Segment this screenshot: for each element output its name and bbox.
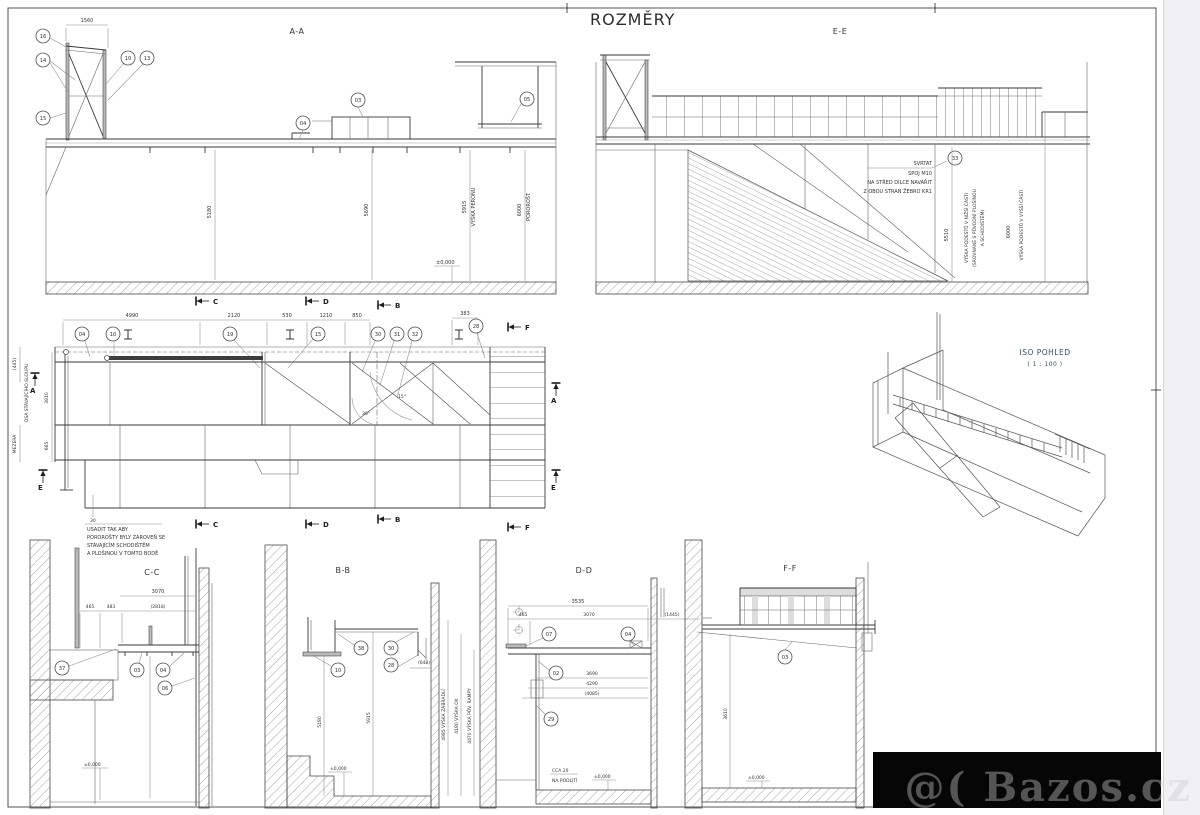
aa-elevation: ±0,000 [436,260,455,266]
balloon: 10 [121,51,135,65]
balloon: 14 [36,53,50,67]
plan-note-3: STÁVAJÍCÍM SCHODIŠTĚM [87,541,150,549]
balloon: 31 [390,327,404,341]
svg-text:14: 14 [40,58,47,64]
plan-dim: 850 [352,313,362,319]
svg-text:38: 38 [358,646,365,652]
marker-f-top: F [525,324,530,332]
dd-note1: CCA 20 [552,768,569,774]
balloon: 30 [384,641,398,655]
dd-dim: 3070 [583,612,595,618]
aa-vdim4: 6000 [517,204,523,217]
svg-text:16: 16 [40,34,47,40]
svg-text:04: 04 [300,121,307,127]
ee-vdim2: 6000 [1006,226,1012,239]
marker-c-top: C [213,298,218,306]
dd-elevation: ±0,000 [594,774,611,780]
balloon: 04 [156,663,170,677]
balloon: 07 [542,627,556,641]
plan-note-2: POROROŠTY BYLY ZÁROVEŇ SE [87,534,165,541]
balloon: 04 [621,627,635,641]
ee-note-1: SVRTAT [914,161,933,167]
balloon: 38 [354,641,368,655]
plan-dim: 1210 [320,313,333,319]
svg-text:10: 10 [335,668,342,674]
bb-label: B-B [335,566,350,575]
marker-b-top: B [395,302,400,310]
svg-text:28: 28 [388,663,395,669]
plan-note-1: USADIT TAK ABY [87,527,129,533]
svg-text:04: 04 [160,668,167,674]
dd-label: D-D [576,566,593,575]
marker-d-top: D [323,298,329,306]
dd-dim: 465 [519,612,528,618]
iso-scale: ( 1 : 100 ) [1027,361,1062,368]
svg-text:05: 05 [524,97,531,103]
ee-label: E-E [833,27,848,36]
plan-note-no: 30 [90,518,96,524]
plan-left-gap: MEZERA [12,434,18,454]
plan-left-dim1: (445) [12,358,18,370]
dd-vlabel2: 4180 VÝŠKA OK [453,697,460,733]
dd-note2: NA PODLITÍ [552,777,578,784]
bb-vdim1: 5180 [317,716,323,728]
iso-title: ISO POHLED [1019,348,1070,357]
marker-a-left: A [30,387,36,395]
svg-text:32: 32 [412,332,419,338]
dd-dimb: 4290 [586,681,598,687]
plan-dim: 383 [460,311,470,317]
balloon: 37 [55,661,69,675]
marker-c-bottom: C [213,521,218,529]
plan-angle2: 15° [398,394,406,400]
balloon: 03 [351,93,365,107]
ee-vlabel2: VÝŠKA PODESTŮ V VYŠŠÍ ČÁSTI [1018,190,1025,261]
balloon: 10 [331,663,345,677]
svg-text:33: 33 [952,156,959,162]
plan-angle1: 30° [362,411,370,417]
svg-text:03: 03 [782,655,789,661]
balloon: 28 [469,319,483,333]
aa-label: A-A [290,27,305,36]
svg-text:13: 13 [144,56,151,62]
ee-vdim1: 5510 [944,229,950,242]
bb-elevation: ±0,000 [330,766,347,772]
watermark: @( Bazos.cz [873,752,1192,811]
svg-text:28: 28 [473,324,480,330]
ff-elevation: ±0,000 [748,775,765,781]
plan-dim: 4990 [126,313,139,319]
cc-dim-top: 3070 [152,589,165,595]
marker-d-bottom: D [323,521,329,529]
svg-text:04: 04 [79,332,86,338]
marker-a-right: A [551,397,557,405]
page-title: ROZMĚRY [590,10,675,29]
svg-text:15: 15 [315,332,322,338]
plan-left-dim3: 665 [44,442,50,451]
balloon: 04 [296,116,310,130]
balloon: 28 [384,658,398,672]
aa-vdim2: 5690 [364,204,370,217]
marker-f-bottom: F [525,524,530,532]
balloon: 05 [520,92,534,106]
dd-vlabel1: 4985 VÝŠKA ZÁBRADLÍ [440,689,447,741]
watermark-text: @( Bazos.cz [905,764,1193,811]
svg-text:06: 06 [162,686,169,692]
ff-vdim: 3610 [723,708,729,720]
dd-dim-top: 3535 [572,599,585,605]
balloon: 30 [371,327,385,341]
balloon: 15 [311,327,325,341]
balloon: 32 [408,327,422,341]
svg-text:29: 29 [548,717,555,723]
balloon: 03 [778,650,792,664]
aa-vlabel4: POROROŠT [525,192,532,221]
bb-vdim2: 5915 [366,712,372,724]
balloon: 02 [549,666,563,680]
balloon: 10 [106,327,120,341]
svg-text:03: 03 [355,98,362,104]
plan-left-dim2: 3810 [44,392,50,404]
ff-label: F-F [783,564,797,573]
marker-e-left: E [38,484,43,492]
cc-dim: 483 [107,604,116,610]
plan-note-4: A PLOŠINOU V TOMTO BODĚ [87,549,158,557]
cc-dim: 465 [86,604,95,610]
aa-vdim1: 5180 [207,206,213,219]
marker-b-bottom: B [395,516,400,524]
svg-text:31: 31 [394,332,401,338]
balloon: 16 [36,29,50,43]
dd-dimb: 3690 [586,671,598,677]
svg-text:02: 02 [553,671,560,677]
plan-dim: 530 [282,313,292,319]
aa-vlabel3: VÝŠKA PERONU [470,187,477,226]
svg-text:19: 19 [227,332,234,338]
svg-text:37: 37 [59,666,66,672]
dd-vlabel3: 4470 VÝŠKA PŮV. RAMPY [466,688,473,744]
svg-text:07: 07 [546,632,553,638]
aa-dim-top: 1560 [81,18,94,24]
marker-e-right: E [551,484,556,492]
technical-drawing: ROZMĚRY A-A 1560 5180 5690 5915 VÝŠKA PE… [0,0,1200,815]
cc-elevation: ±0,000 [84,762,101,768]
balloon: 03 [130,663,144,677]
plan-left-col: OSA STÁVAJÍCÍHO SLOUPU [23,364,30,422]
svg-text:04: 04 [625,632,632,638]
ee-note-4: Z OBOU STRAN ŽEBRO KR1 [863,187,932,195]
bb-dim: (648) [418,660,430,666]
ee-note-2: SPOJ M10 [908,171,932,177]
balloon: 04 [75,327,89,341]
svg-text:10: 10 [125,56,132,62]
balloon: 15 [36,111,50,125]
aa-vdim3: 5915 [462,201,468,214]
ee-note-3: NA STŘED DÍLCE NAVAŘIT [867,178,933,186]
svg-text:30: 30 [388,646,395,652]
balloon: 19 [223,327,237,341]
balloon: 33 [948,151,962,165]
svg-text:30: 30 [375,332,382,338]
dd-dim: (1445) [665,612,680,618]
drawing-sheet: ROZMĚRY A-A 1560 5180 5690 5915 VÝŠKA PE… [0,0,1200,815]
balloon: 29 [544,712,558,726]
balloon: 06 [158,681,172,695]
dd-dimb: (4085) [585,691,600,697]
cc-dim: (2818) [151,604,166,610]
svg-text:15: 15 [40,116,47,122]
cc-label: C-C [144,568,160,577]
plan-dim: 2120 [228,313,241,319]
svg-text:03: 03 [134,668,141,674]
balloon: 13 [140,51,154,65]
svg-text:10: 10 [110,332,117,338]
